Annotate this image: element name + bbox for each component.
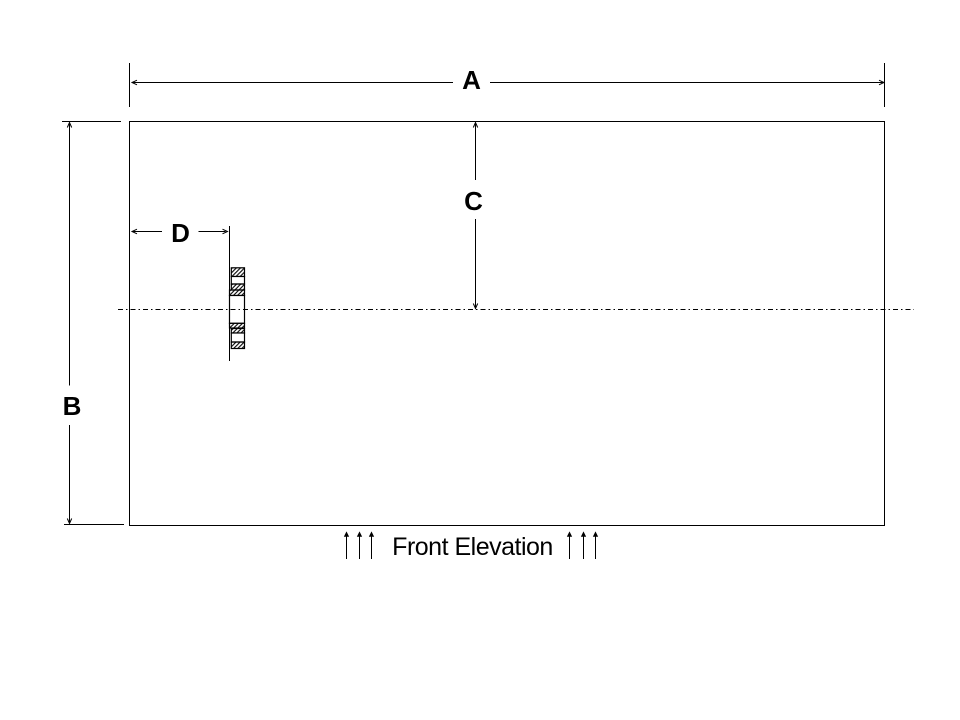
- svg-text:C: C: [464, 186, 483, 216]
- svg-text:D: D: [171, 218, 190, 248]
- svg-text:A: A: [462, 65, 481, 95]
- svg-text:B: B: [63, 391, 82, 421]
- svg-text:Front Elevation: Front Elevation: [392, 533, 553, 561]
